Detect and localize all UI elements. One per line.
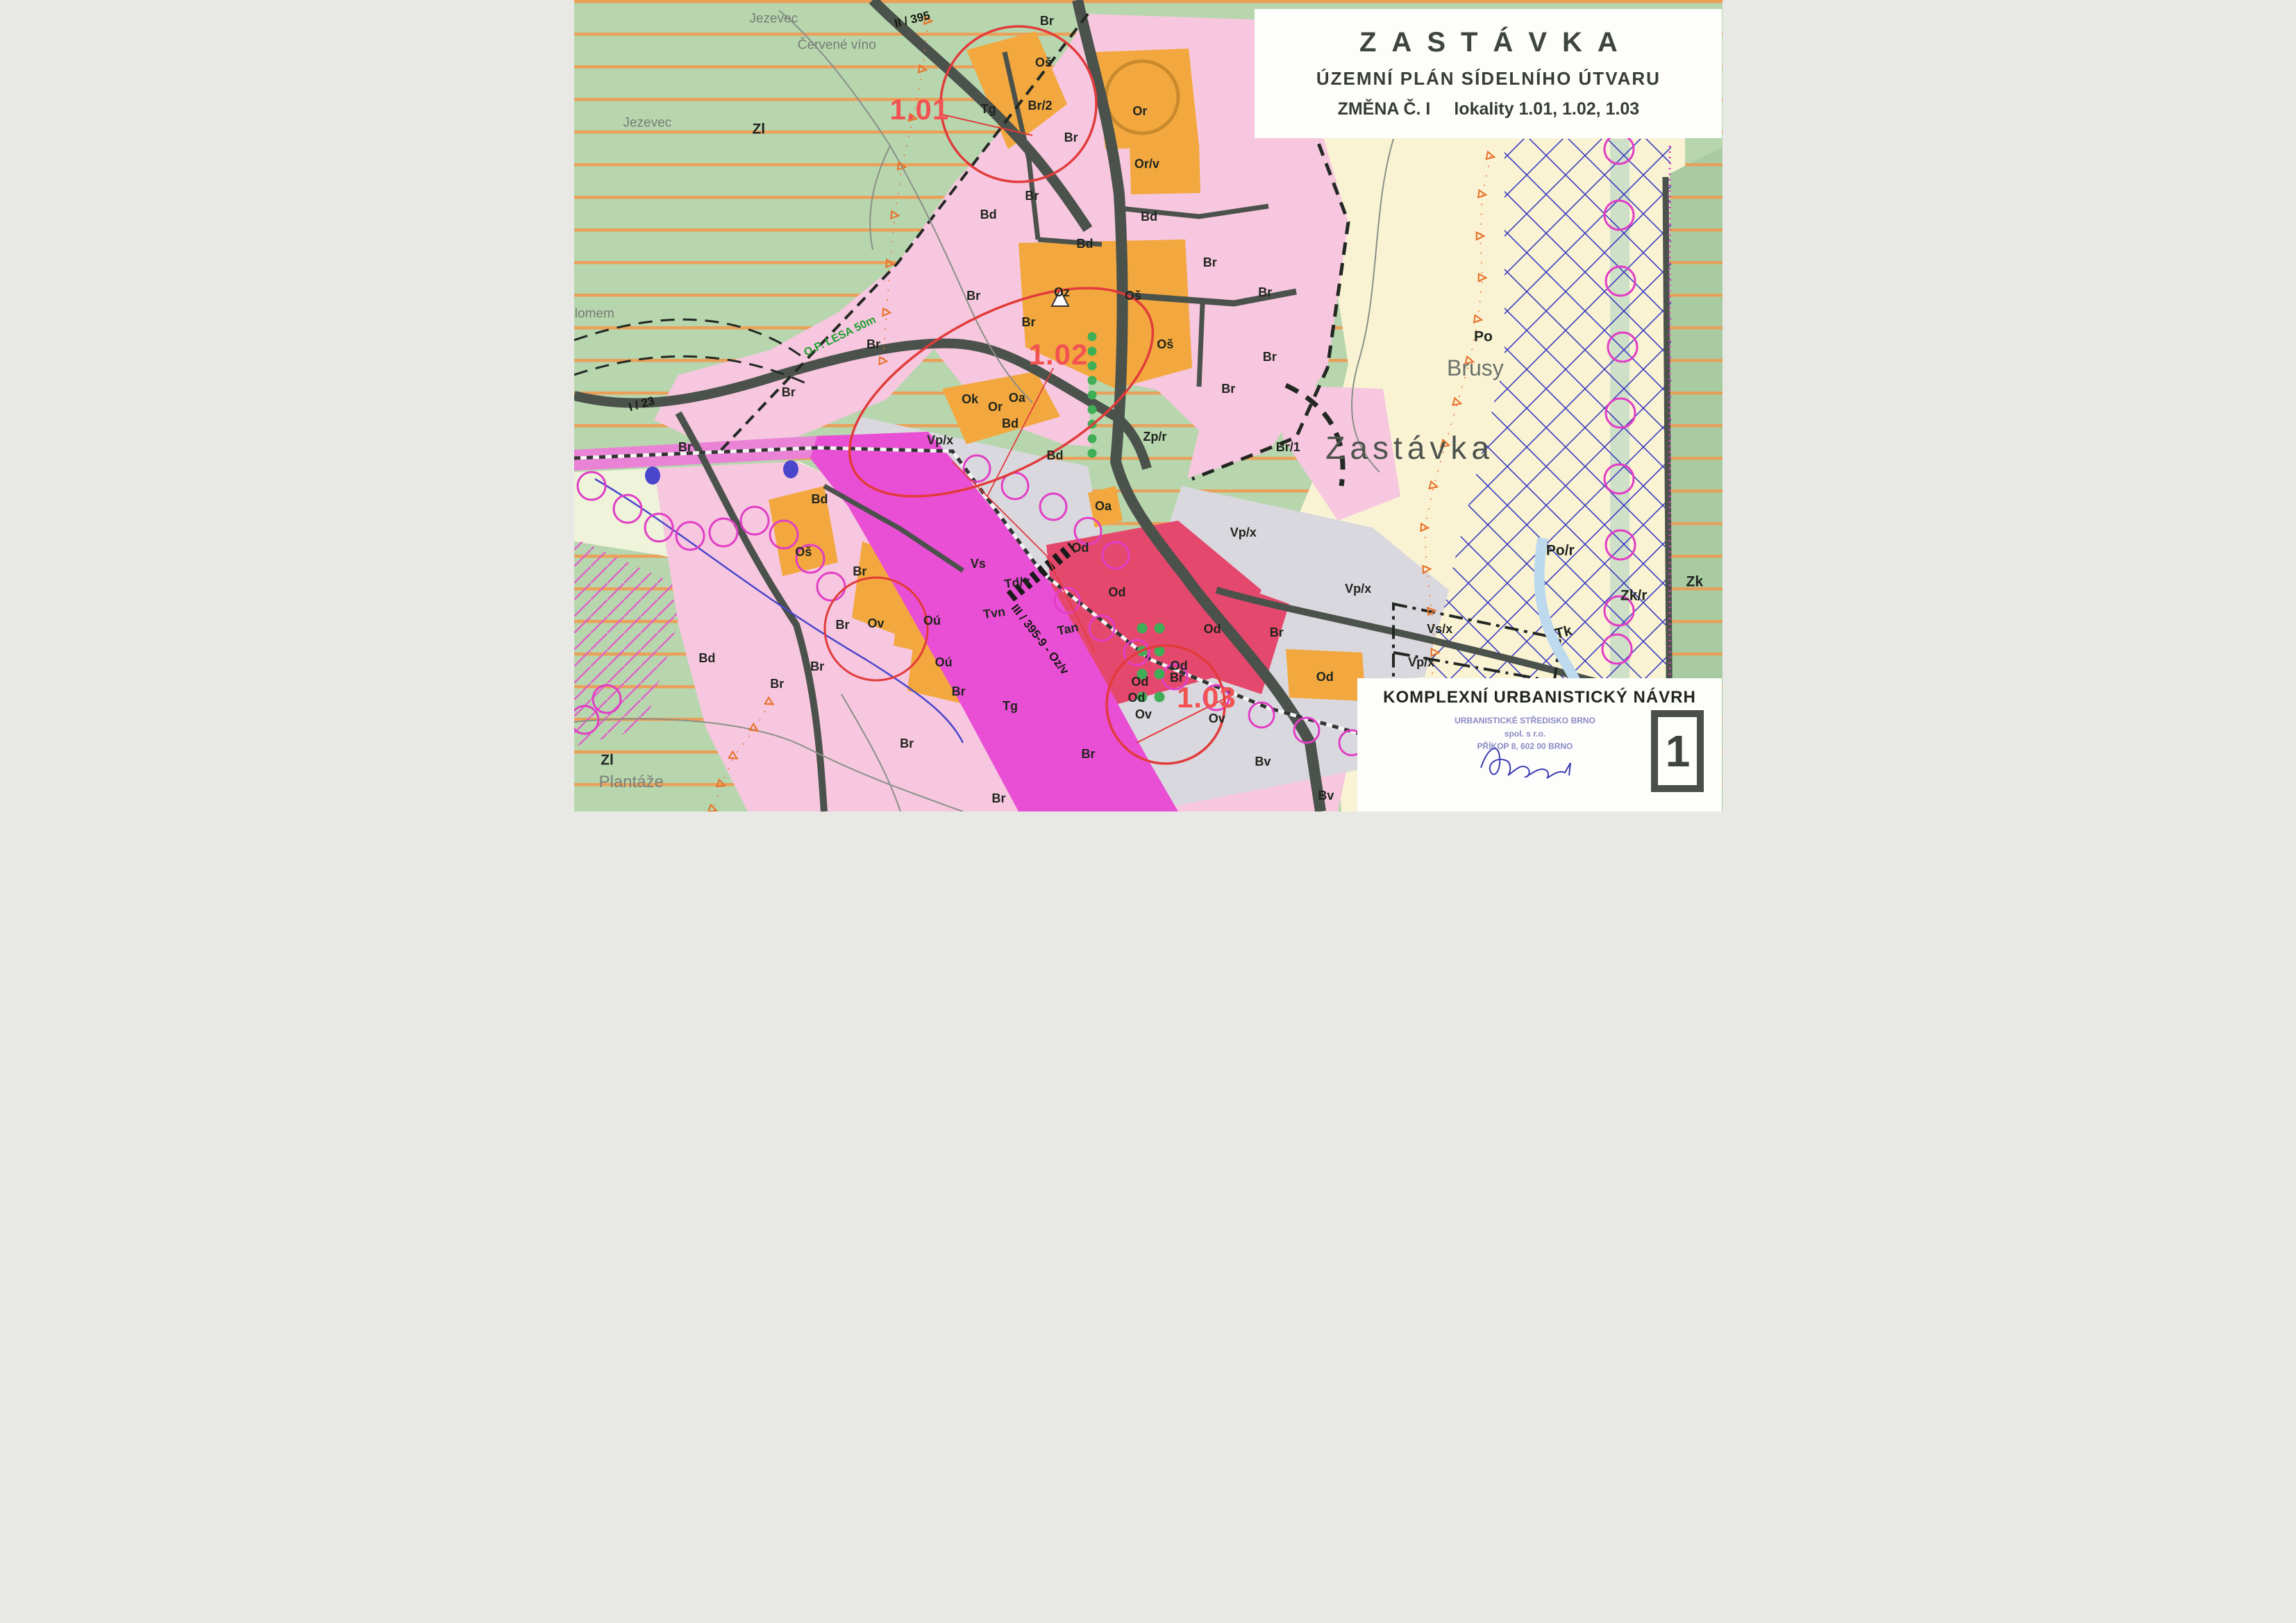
title-panel: ZASTÁVKA ÚZEMNÍ PLÁN SÍDELNÍHO ÚTVARU ZM…: [1255, 9, 1722, 138]
plan-subtitle: ÚZEMNÍ PLÁN SÍDELNÍHO ÚTVARU: [1316, 68, 1661, 90]
sheet-number: 1: [1666, 725, 1691, 777]
plan-change-line: ZMĚNA Č. Ilokality 1.01, 1.02, 1.03: [1338, 99, 1640, 119]
plan-sheet: 1.011.021.03II / 395I / 23III / 395-9 - …: [574, 0, 1723, 811]
localities-list: lokality 1.01, 1.02, 1.03: [1454, 99, 1639, 119]
sheet-number-box: 1: [1651, 710, 1704, 792]
sheet-number-frame: 1: [1658, 717, 1697, 785]
page-title: ZASTÁVKA: [1344, 27, 1633, 58]
stamp-line-1: URBANISTICKÉ STŘEDISKO BRNO: [1423, 714, 1627, 728]
drawing-title: KOMPLEXNÍ URBANISTICKÝ NÁVRH: [1357, 688, 1723, 707]
signature-scribble: [1477, 737, 1582, 785]
change-number: ZMĚNA Č. I: [1338, 99, 1431, 119]
footer-panel: KOMPLEXNÍ URBANISTICKÝ NÁVRH URBANISTICK…: [1357, 678, 1723, 811]
